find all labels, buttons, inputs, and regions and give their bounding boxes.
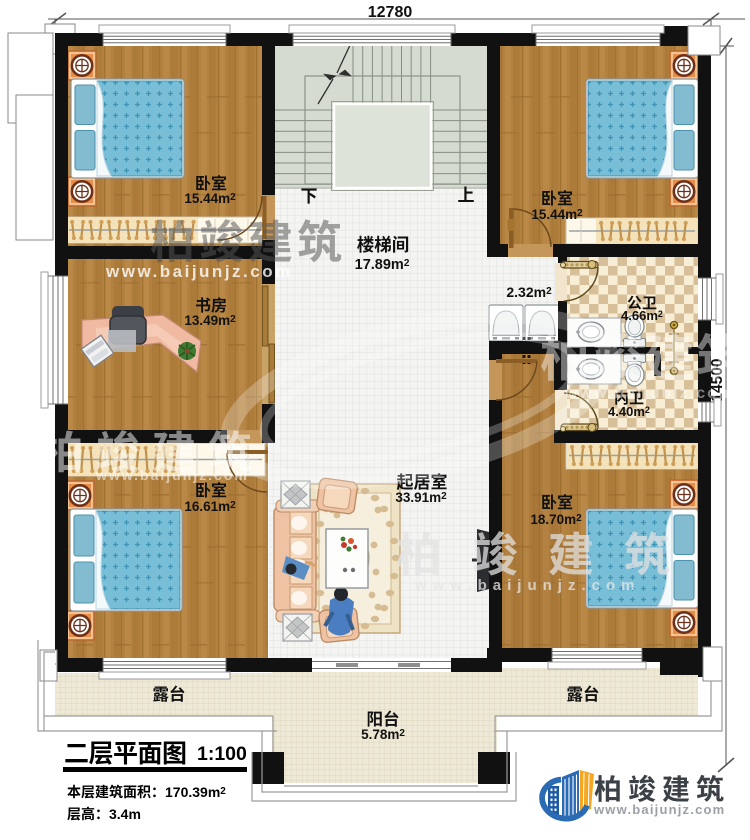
svg-text:33.91m2: 33.91m2 [395, 490, 447, 505]
svg-text:12780: 12780 [368, 4, 413, 21]
svg-text:www.baijunjz.com: www.baijunjz.com [564, 385, 735, 402]
svg-text:16.61m2: 16.61m2 [184, 499, 236, 514]
svg-text:本层建筑面积：170.39m2: 本层建筑面积：170.39m2 [67, 782, 226, 802]
svg-text:露台: 露台 [153, 681, 186, 705]
svg-text:5.78m2: 5.78m2 [361, 727, 405, 742]
svg-text:楼梯间: 楼梯间 [357, 232, 410, 257]
svg-text:www.baijunjz.com: www.baijunjz.com [593, 802, 725, 817]
svg-text:1:100: 1:100 [197, 743, 247, 765]
svg-text:卧室: 卧室 [541, 185, 573, 209]
svg-text:www.baijunjz.com: www.baijunjz.com [95, 467, 249, 483]
svg-text:柏竣建筑: 柏竣建筑 [540, 319, 748, 391]
svg-text:4.40m2: 4.40m2 [608, 404, 650, 419]
svg-text:露台: 露台 [567, 681, 600, 705]
svg-text:13.49m2: 13.49m2 [184, 313, 236, 328]
svg-text:www.baijunjz.com: www.baijunjz.com [105, 262, 293, 281]
svg-text:层高：3.4m: 层高：3.4m [67, 804, 141, 824]
svg-text:二层平面图: 二层平面图 [64, 734, 187, 770]
svg-text:www.baijunjz.com: www.baijunjz.com [414, 577, 640, 594]
svg-text:柏竣建筑: 柏竣建筑 [396, 519, 700, 585]
svg-text:上: 上 [458, 181, 475, 206]
svg-text:卧室: 卧室 [541, 489, 573, 513]
svg-text:15.44m2: 15.44m2 [531, 207, 583, 222]
svg-text:下: 下 [301, 182, 318, 207]
svg-text:15.44m2: 15.44m2 [184, 191, 236, 206]
svg-text:2.32m2: 2.32m2 [506, 284, 552, 300]
svg-text:17.89m2: 17.89m2 [355, 257, 410, 273]
